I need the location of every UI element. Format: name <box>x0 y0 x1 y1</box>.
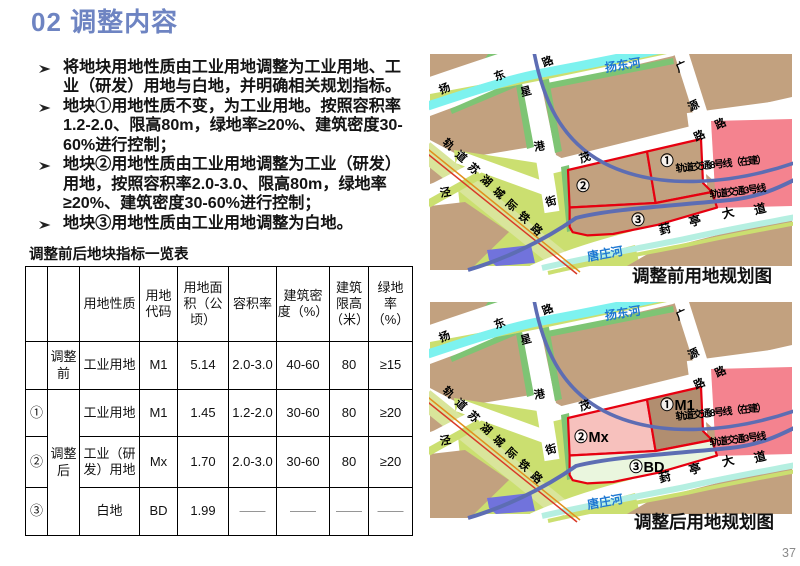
svg-text:③: ③ <box>629 459 643 475</box>
svg-text:泾: 泾 <box>439 433 452 448</box>
svg-text:BD: BD <box>644 460 665 476</box>
svg-text:亭: 亭 <box>687 212 702 230</box>
svg-text:①: ① <box>660 397 674 413</box>
svg-text:M1: M1 <box>675 398 695 414</box>
svg-text:③: ③ <box>631 212 645 228</box>
svg-text:①: ① <box>660 153 674 169</box>
svg-text:泾: 泾 <box>439 185 452 200</box>
svg-text:亭: 亭 <box>687 460 702 478</box>
svg-text:葑: 葑 <box>657 220 672 238</box>
svg-text:②: ② <box>576 178 590 194</box>
svg-text:②: ② <box>574 429 588 445</box>
svg-text:Mx: Mx <box>589 430 609 446</box>
